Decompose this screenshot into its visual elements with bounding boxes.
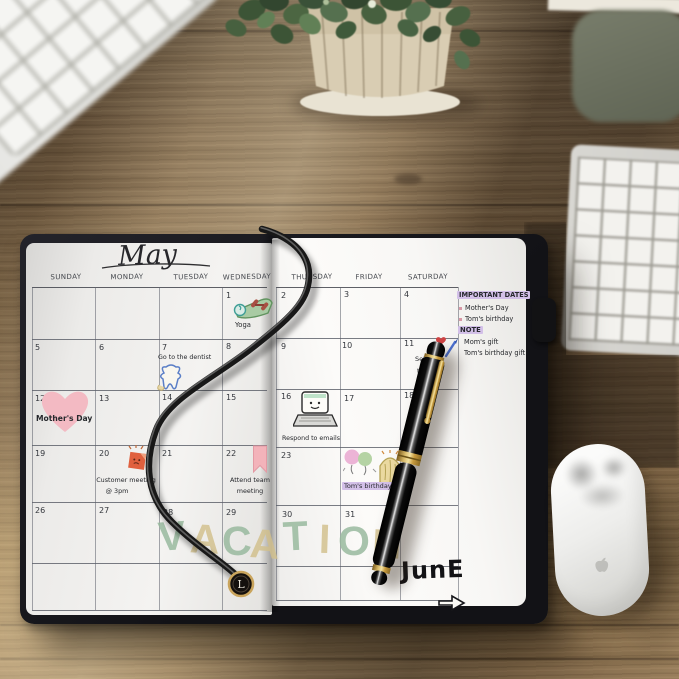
event-mothers-day: Mother's Day <box>36 414 96 423</box>
day-number: 15 <box>226 393 236 402</box>
weekday-saturday: SATURDAY <box>404 272 452 281</box>
event-dentist: Go to the dentist <box>158 354 220 362</box>
apple-mouse <box>549 442 652 619</box>
sidebar-note-title: NOTE <box>458 326 483 334</box>
yoga-mat-doodle <box>227 293 275 321</box>
vacation-letter: C <box>221 520 252 562</box>
weekday-tuesday: TUESDAY <box>169 272 213 281</box>
day-number: 27 <box>99 506 109 515</box>
weekday-wednesday: WEDNESDAY <box>220 272 274 281</box>
day-number: 29 <box>226 508 236 517</box>
day-number: 14 <box>162 393 172 402</box>
laptop-doodle <box>293 390 339 434</box>
day-number: 4 <box>404 290 409 299</box>
day-number: 20 <box>99 449 109 458</box>
bullet-icon <box>459 318 462 321</box>
sidebar-note-item: Tom's birthday gift <box>464 349 525 357</box>
day-number: 10 <box>342 341 352 350</box>
vacation-letter: O <box>337 520 370 562</box>
event-customer-line1: Customer meeting <box>94 476 158 484</box>
vacation-letter: I <box>318 519 331 560</box>
day-number: 26 <box>35 506 45 515</box>
heart-doodle <box>37 386 93 436</box>
leaf-shadow <box>557 448 638 518</box>
day-number: 13 <box>99 394 109 403</box>
event-customer-line2: @ 3pm <box>94 487 140 495</box>
day-number: 9 <box>281 342 286 351</box>
day-number: 11 <box>404 339 414 348</box>
day-number: 16 <box>281 392 291 401</box>
vacation-letter: V <box>157 515 187 558</box>
sidebar-important-item: Mother's Day <box>459 304 509 312</box>
day-number: 2 <box>281 291 286 300</box>
day-number: 8 <box>226 342 231 351</box>
event-team-line2: meeting <box>227 487 273 495</box>
sidebar-important-item: Tom's birthday <box>459 315 513 323</box>
title-underline <box>96 258 216 272</box>
event-emails: Respond to emails <box>282 435 344 443</box>
weekday-friday: FRIDAY <box>347 272 391 281</box>
day-number: 19 <box>35 449 45 458</box>
event-team-line1: Attend team <box>227 476 273 484</box>
sidebar-important-title: IMPORTANT DATES <box>457 291 530 299</box>
sidebar-note-item: Mom's gift <box>464 338 498 346</box>
ribbon-doodle <box>252 445 269 477</box>
pen-loop <box>532 298 556 342</box>
balloons-doodle <box>343 448 377 484</box>
weekday-sunday: SUNDAY <box>44 272 88 281</box>
bullet-icon <box>459 307 462 310</box>
day-number: 22 <box>226 449 236 458</box>
arrow-icon <box>436 593 468 613</box>
apple-logo-icon <box>592 555 611 576</box>
tooth-doodle <box>155 363 187 393</box>
weekday-thursday: THURSDAY <box>288 272 336 281</box>
desk-scene: May SUNDAY MONDAY TUESDAY WEDNESDAY THUR… <box>0 0 679 679</box>
day-number: 23 <box>281 451 291 460</box>
day-number: 7 <box>162 343 167 352</box>
vacation-letter: A <box>249 523 281 566</box>
vacation-letter: A <box>189 518 221 560</box>
day-number: 21 <box>162 449 172 458</box>
sticky-note-doodle <box>125 445 151 475</box>
day-number: 17 <box>344 394 354 403</box>
event-yoga: Yoga <box>228 321 258 329</box>
day-number: 6 <box>99 343 104 352</box>
day-number: 5 <box>35 343 40 352</box>
weekday-monday: MONDAY <box>105 272 149 281</box>
vacation-letter: T <box>282 515 309 557</box>
day-number: 3 <box>344 290 349 299</box>
